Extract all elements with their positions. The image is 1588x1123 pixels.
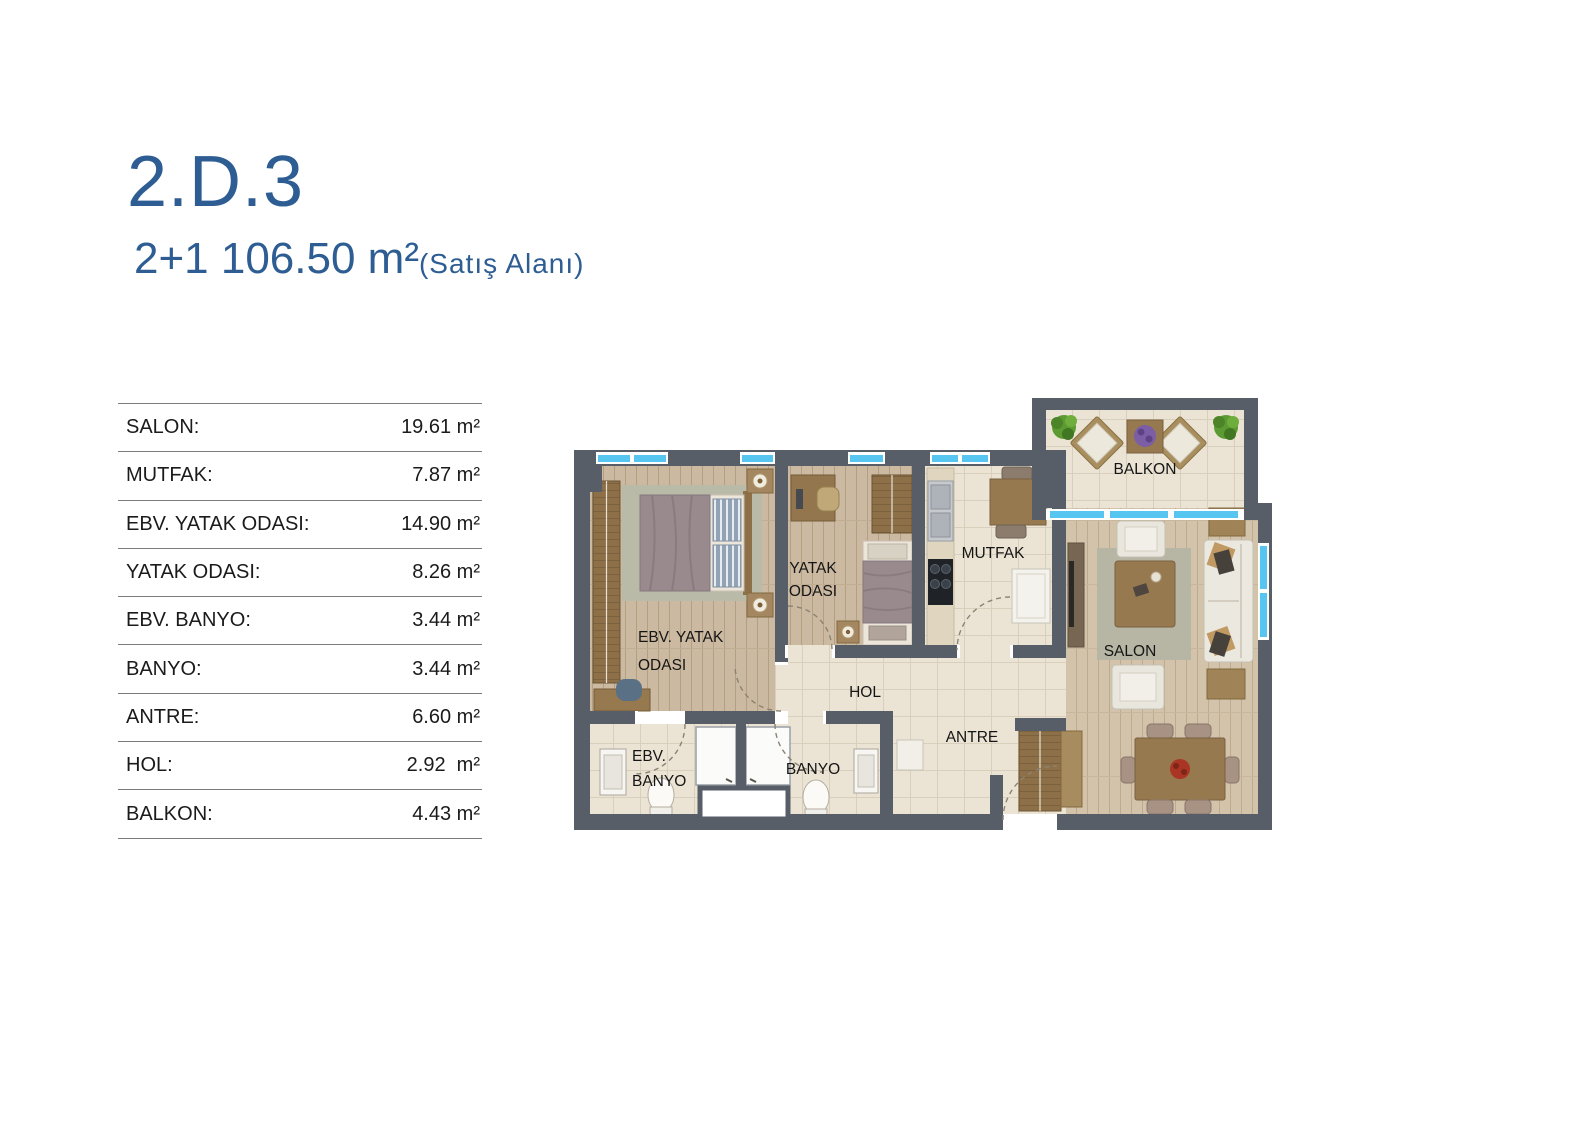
window-top	[740, 452, 775, 464]
shaft	[700, 788, 788, 819]
sink-basin	[931, 485, 950, 509]
wall-bath-divider	[736, 724, 746, 786]
bed-duvet	[863, 561, 912, 623]
jamb	[957, 645, 960, 658]
armchair-seat	[1125, 527, 1157, 551]
shower-icon	[746, 727, 790, 785]
table-row: MUTFAK:7.87 m²	[118, 451, 482, 499]
flower-detail	[1181, 769, 1187, 775]
fridge-icon	[1012, 569, 1050, 623]
room-area: 6.60 m²	[412, 706, 482, 729]
window-right	[1258, 543, 1269, 640]
unit-spec-note: (Satış Alanı)	[419, 249, 585, 279]
room-label-ebv-yatak-odasi: ODASI	[638, 657, 686, 674]
chair-icon	[817, 487, 839, 511]
flower-detail	[1138, 429, 1145, 436]
flower-detail	[1146, 436, 1153, 443]
room-label-hol: HOL	[849, 684, 881, 701]
wall-kitchen-south	[1013, 645, 1066, 658]
room-name: HOL:	[118, 754, 173, 777]
room-name: ANTRE:	[118, 706, 199, 729]
entry-cabinet-icon	[897, 740, 923, 770]
lamp-center	[758, 479, 763, 484]
wall-bath-north	[823, 711, 893, 724]
sink-basin	[931, 513, 950, 537]
pillow-icon	[713, 499, 741, 541]
wall-left	[574, 450, 590, 830]
wall-corner-step	[590, 466, 602, 492]
wall-bottom	[1057, 814, 1272, 830]
wall-closet-cap	[1015, 718, 1066, 731]
lamp-center	[846, 630, 850, 634]
unit-spec: 2+1 106.50 m² (Satış Alanı)	[134, 236, 584, 282]
dining-chair-icon	[1121, 757, 1135, 783]
floor-plan: BALKON MUTFAK YATAK ODASI EBV. YATAK ODA…	[560, 393, 1290, 843]
room-label-balkon: BALKON	[1114, 461, 1177, 478]
dining-chair-icon	[1185, 800, 1211, 814]
wall-bedroom-divider	[775, 466, 788, 665]
wall-balcony-top	[1032, 398, 1258, 410]
floor-door-gap	[775, 665, 788, 711]
lamp-center	[758, 603, 763, 608]
table-row: EBV. YATAK ODASI:14.90 m²	[118, 500, 482, 548]
room-area: 3.44 m²	[412, 658, 482, 681]
room-label-antre: ANTRE	[946, 729, 999, 746]
dining-chair-icon	[1147, 724, 1173, 738]
flower-detail	[1173, 763, 1179, 769]
jamb	[823, 711, 826, 724]
floor-plan-drawing: BALKON MUTFAK YATAK ODASI EBV. YATAK ODA…	[560, 393, 1290, 843]
bed-bench	[869, 626, 906, 640]
room-area: 4.43 m²	[412, 803, 482, 826]
wall-balcony-right	[1244, 398, 1258, 520]
window-top	[930, 452, 990, 464]
room-area: 2.92 m²	[407, 754, 482, 777]
room-label-ebv-banyo: BANYO	[632, 773, 686, 790]
flower-centerpiece-icon	[1170, 759, 1190, 779]
unit-code: 2.D.3	[127, 146, 584, 218]
sink-basin	[858, 755, 874, 787]
area-table: SALON:19.61 m² MUTFAK:7.87 m² EBV. YATAK…	[118, 403, 482, 839]
room-name: SALON:	[118, 416, 199, 439]
room-area: 7.87 m²	[412, 464, 482, 487]
wall-entry-stub	[990, 775, 1003, 814]
burner	[942, 580, 951, 589]
table-row: HOL:2.92 m²	[118, 741, 482, 789]
cabinet-icon	[1061, 731, 1082, 807]
wall-bedroom-kitchen	[912, 466, 925, 658]
monitor-icon	[796, 489, 803, 509]
wall-kitchen-living	[1052, 466, 1066, 658]
burner	[942, 565, 951, 574]
room-area: 19.61 m²	[401, 416, 482, 439]
room-label-banyo: BANYO	[786, 761, 840, 778]
jamb	[775, 711, 778, 724]
toilet-tank	[650, 807, 672, 815]
pillow-icon	[868, 544, 907, 559]
room-label-yatak-odasi: YATAK	[789, 560, 837, 577]
wall-balcony-left	[1032, 398, 1046, 520]
chair-icon	[996, 525, 1026, 538]
wall-bath-north	[590, 711, 635, 724]
room-area: 8.26 m²	[412, 561, 482, 584]
room-label-ebv-banyo: EBV.	[632, 748, 666, 765]
flower-pot-icon	[1134, 425, 1156, 447]
sink-basin	[604, 755, 622, 789]
room-label-mutfak: MUTFAK	[962, 545, 1026, 562]
wall-bedroom-south	[832, 645, 957, 658]
jamb	[635, 711, 638, 724]
table-row: SALON:19.61 m²	[118, 403, 482, 451]
window-balcony-band	[1046, 509, 1244, 520]
chair-icon	[1002, 467, 1032, 480]
table-row: EBV. BANYO:3.44 m²	[118, 596, 482, 644]
entry-threshold	[1003, 816, 1057, 828]
jamb	[682, 711, 685, 724]
room-name: YATAK ODASI:	[118, 561, 260, 584]
dining-chair-icon	[1225, 757, 1239, 783]
dining-chair-icon	[1185, 724, 1211, 738]
jamb	[785, 645, 788, 658]
table-row: ANTRE:6.60 m²	[118, 693, 482, 741]
room-label-yatak-odasi: ODASI	[789, 583, 837, 600]
room-label-salon: SALON	[1104, 643, 1157, 660]
wall-bath-north	[685, 711, 775, 724]
room-name: EBV. YATAK ODASI:	[118, 513, 309, 536]
armchair-seat	[1120, 673, 1156, 701]
room-name: EBV. BANYO:	[118, 609, 251, 632]
jamb	[1010, 645, 1013, 658]
table-decor	[1151, 572, 1161, 582]
room-area: 3.44 m²	[412, 609, 482, 632]
coffee-table-icon	[1115, 561, 1175, 627]
room-name: MUTFAK:	[118, 464, 213, 487]
table-row: BANYO:3.44 m²	[118, 644, 482, 692]
room-name: BALKON:	[118, 803, 213, 826]
table-row: YATAK ODASI:8.26 m²	[118, 548, 482, 596]
room-label-ebv-yatak-odasi: EBV. YATAK	[638, 629, 724, 646]
burner	[931, 565, 940, 574]
side-table-icon	[1207, 669, 1245, 699]
unit-spec-area: 2+1 106.50 m²	[134, 236, 419, 282]
pouf-icon	[616, 679, 642, 701]
title-block: 2.D.3 2+1 106.50 m² (Satış Alanı)	[127, 146, 584, 282]
table-row: BALKON:4.43 m²	[118, 789, 482, 837]
jamb	[775, 662, 788, 665]
shower-icon	[696, 727, 736, 785]
tv-icon	[1069, 561, 1074, 627]
room-area: 14.90 m²	[401, 513, 482, 536]
wall-bath-entry	[880, 724, 893, 814]
window-top	[848, 452, 885, 464]
room-name: BANYO:	[118, 658, 202, 681]
pillow-icon	[713, 545, 741, 587]
window-top	[596, 452, 668, 464]
burner	[931, 580, 940, 589]
dining-chair-icon	[1147, 800, 1173, 814]
